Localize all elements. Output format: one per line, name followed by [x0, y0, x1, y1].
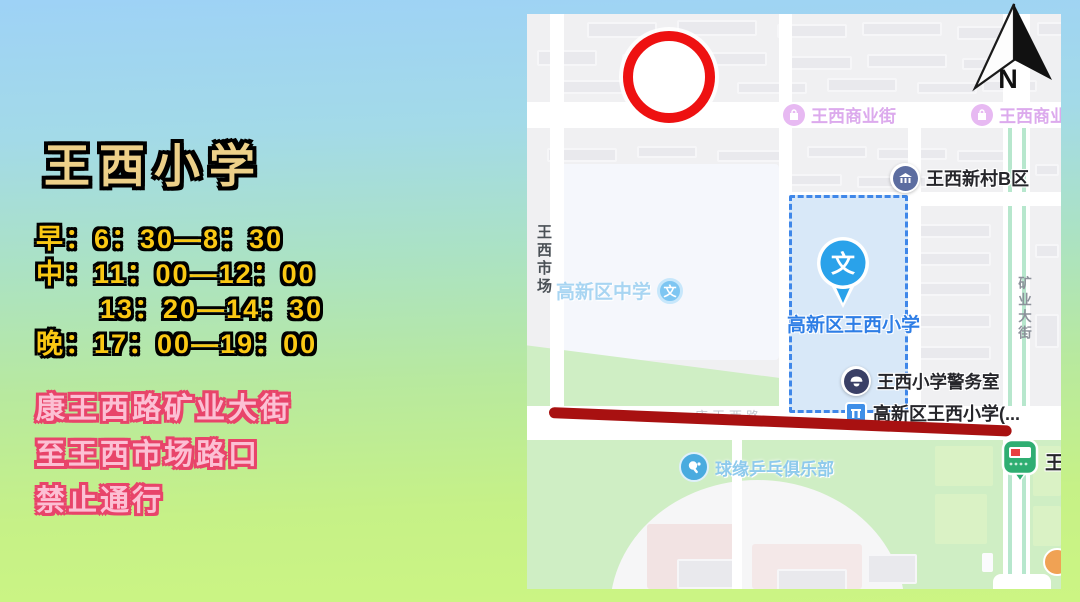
map-building [677, 20, 757, 36]
primary-school-pin[interactable]: 文 [815, 236, 871, 315]
street-name-market: 王西市场 [533, 224, 554, 296]
notice-line-2: 至王西市场路口 [36, 432, 292, 478]
map-canvas[interactable]: 康王西路 王西市场 矿业大街 王西商业街 王西商业街 [527, 14, 1061, 589]
poi-bus-stop[interactable]: 王 [1001, 438, 1061, 484]
map-building [867, 554, 917, 584]
notice-line-3: 禁止通行 [36, 478, 292, 524]
pingpong-icon [679, 452, 709, 482]
map-building [1035, 314, 1059, 348]
pin-wen-glyph: 文 [831, 250, 856, 278]
poi-label: 王西商业街 [811, 102, 896, 127]
map-building [919, 224, 991, 238]
poi-label: 王 [1045, 448, 1061, 475]
map-building [737, 82, 807, 94]
map-building [717, 150, 787, 162]
map-building [982, 553, 993, 572]
poi-village-b[interactable]: 王西新村B区 [890, 163, 1029, 193]
notice-line-1: 康王西路矿业大街 [36, 386, 292, 432]
street-name-mining: 矿业大街 [1013, 276, 1033, 342]
map-building [707, 52, 767, 66]
map-building [807, 146, 867, 158]
announcement-graphic: 王西小学 早：6：30—8：30 中：11：00—12：00 13：20—14：… [0, 0, 1080, 602]
poi-primary-school[interactable]: 高新区王西小学 [787, 310, 920, 337]
schedule-evening: 晚：17：00—19：00 [36, 327, 323, 362]
map-building [1035, 244, 1059, 258]
map-building [919, 346, 991, 360]
poi-label: 王西商业街 [999, 102, 1061, 127]
map-building [919, 252, 991, 266]
poi-shopping-street-2[interactable]: 王西商业街 [971, 102, 1061, 127]
shopping-bag-icon [783, 104, 805, 126]
schedule-block: 早：6：30—8：30 中：11：00—12：00 13：20—14：30 晚：… [36, 222, 323, 362]
poi-label: 高新区王西小学 [787, 310, 920, 337]
map-building [677, 559, 737, 589]
poi-police-room[interactable]: 王西小学警务室 [841, 366, 1000, 396]
map-building [919, 282, 991, 296]
north-arrow-icon: N [968, 0, 1060, 96]
map-building [862, 22, 942, 36]
page-title: 王西小学 [44, 130, 264, 196]
map-building [867, 54, 947, 68]
residence-icon [890, 163, 920, 193]
map-building [993, 574, 1051, 589]
schedule-noon: 中：11：00—12：00 [36, 257, 323, 292]
map-building [537, 50, 597, 66]
map-building [827, 78, 897, 92]
compass-n-label: N [998, 64, 1018, 94]
poi-label: 王西新村B区 [926, 165, 1029, 191]
road-market-street [550, 14, 564, 406]
bus-stop-icon [1001, 438, 1039, 484]
map-building [637, 146, 697, 158]
poi-middle-school[interactable]: 高新区中学 文 [556, 277, 683, 304]
poi-label: 球缘乒乓俱乐部 [715, 455, 834, 480]
map-building [557, 80, 627, 94]
police-icon [841, 366, 871, 396]
schedule-afternoon: 13：20—14：30 [100, 292, 323, 327]
closure-notice: 康王西路矿业大街 至王西市场路口 禁止通行 [36, 386, 292, 524]
map-building [777, 569, 847, 589]
school-wen-icon: 文 [657, 278, 683, 304]
green-block-1 [935, 446, 993, 486]
map-building [1035, 164, 1059, 176]
green-block-4 [1033, 506, 1061, 546]
poi-label: 王西小学警务室 [877, 369, 1000, 394]
map-building [782, 56, 852, 70]
middle-school-campus-area [557, 164, 779, 360]
schedule-morning: 早：6：30—8：30 [36, 222, 323, 257]
green-block-2 [935, 494, 987, 544]
poi-shopping-street-1[interactable]: 王西商业街 [783, 102, 896, 127]
poi-pingpong-club[interactable]: 球缘乒乓俱乐部 [679, 452, 834, 482]
map-building [919, 314, 991, 328]
poi-label: 高新区中学 [556, 277, 651, 304]
shopping-bag-icon [971, 104, 993, 126]
no-entry-circle [623, 31, 715, 123]
